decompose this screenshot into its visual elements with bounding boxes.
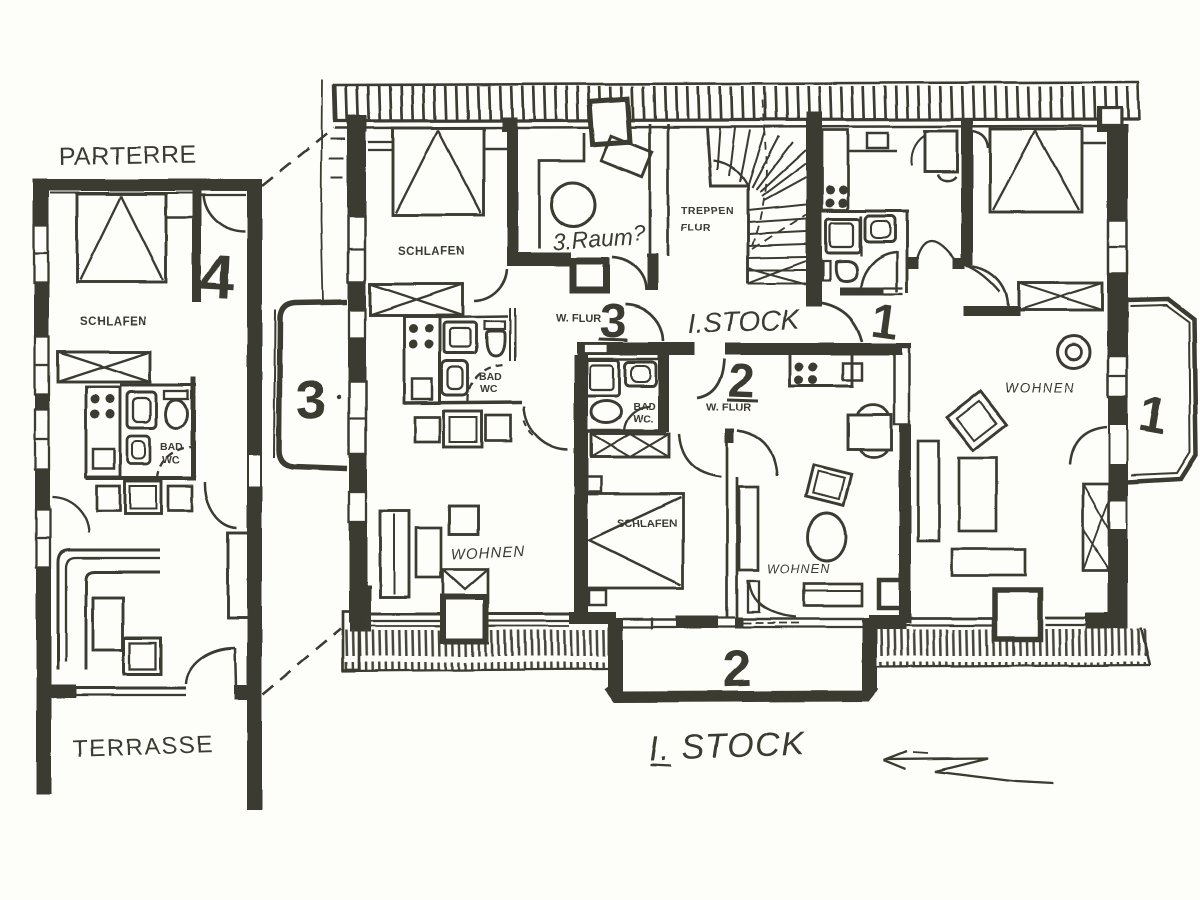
svg-text:?: ? xyxy=(633,220,646,245)
svg-text:SCHLAFEN: SCHLAFEN xyxy=(617,518,677,530)
svg-text:BAD: BAD xyxy=(160,441,183,453)
svg-text:4: 4 xyxy=(198,242,237,313)
svg-text:SCHLAFEN: SCHLAFEN xyxy=(398,246,465,258)
svg-text:TREPPEN: TREPPEN xyxy=(681,205,734,217)
svg-text:3: 3 xyxy=(294,369,327,430)
svg-text:TERRASSE: TERRASSE xyxy=(72,731,214,763)
svg-text:W. FLUR: W. FLUR xyxy=(706,402,751,414)
svg-text:WC: WC xyxy=(162,454,180,466)
svg-text:PARTERRE: PARTERRE xyxy=(59,141,197,171)
svg-text:BAD: BAD xyxy=(479,371,502,383)
svg-text:2: 2 xyxy=(721,640,752,699)
svg-text:W. FLUR: W. FLUR xyxy=(556,313,601,325)
svg-text:WC: WC xyxy=(480,383,498,395)
svg-text:I.STOCK: I.STOCK xyxy=(687,304,801,339)
svg-text:WC.: WC. xyxy=(633,413,653,425)
svg-text:I. STOCK: I. STOCK xyxy=(648,725,806,768)
svg-text:FLUR: FLUR xyxy=(681,222,711,234)
svg-text:WOHNEN: WOHNEN xyxy=(451,543,526,563)
svg-text:WOHNEN: WOHNEN xyxy=(1005,380,1076,395)
svg-text:WOHNEN: WOHNEN xyxy=(767,562,830,576)
svg-text:SCHLAFEN: SCHLAFEN xyxy=(80,316,147,328)
